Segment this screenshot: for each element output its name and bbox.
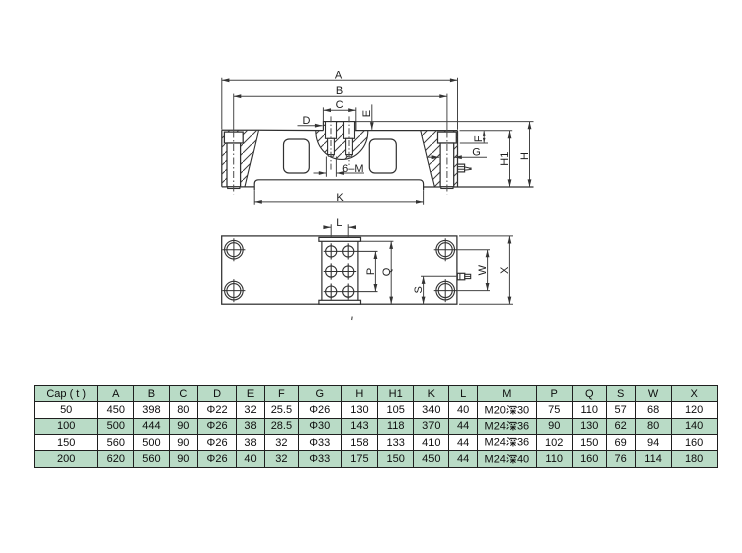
svg-text:C: C	[336, 99, 344, 111]
svg-text:F: F	[473, 135, 485, 142]
svg-text:L: L	[336, 217, 342, 229]
svg-text:K: K	[336, 192, 344, 204]
svg-text:S: S	[413, 286, 425, 293]
svg-text:Q: Q	[381, 267, 393, 276]
svg-text:H1: H1	[499, 152, 511, 166]
svg-text:P: P	[365, 268, 377, 275]
svg-text:W: W	[477, 264, 489, 275]
svg-text:6–M: 6–M	[342, 163, 363, 175]
svg-text:E: E	[361, 110, 373, 117]
svg-text:A: A	[335, 69, 343, 81]
svg-text:D: D	[303, 115, 311, 127]
svg-text:G: G	[472, 146, 481, 158]
svg-text:H: H	[519, 152, 531, 160]
svg-text:X: X	[499, 266, 511, 274]
svg-text:B: B	[336, 85, 343, 97]
